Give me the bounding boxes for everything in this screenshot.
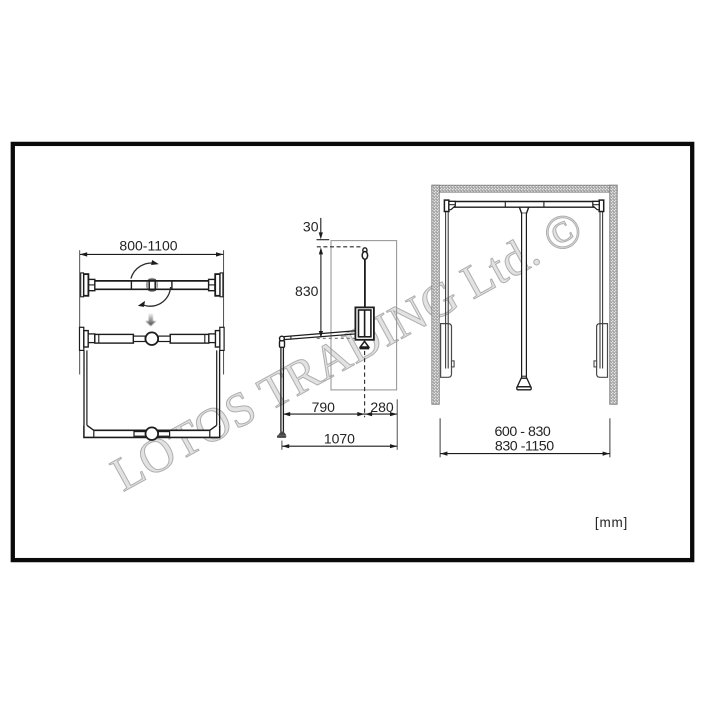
svg-text:800-1100: 800-1100 xyxy=(119,238,177,254)
svg-text:830: 830 xyxy=(295,283,319,299)
svg-text:790: 790 xyxy=(312,399,336,415)
svg-text:30: 30 xyxy=(303,218,319,234)
svg-text:[mm]: [mm] xyxy=(595,515,628,530)
svg-text:830 -1150: 830 -1150 xyxy=(495,438,554,454)
svg-text:1070: 1070 xyxy=(324,430,355,446)
